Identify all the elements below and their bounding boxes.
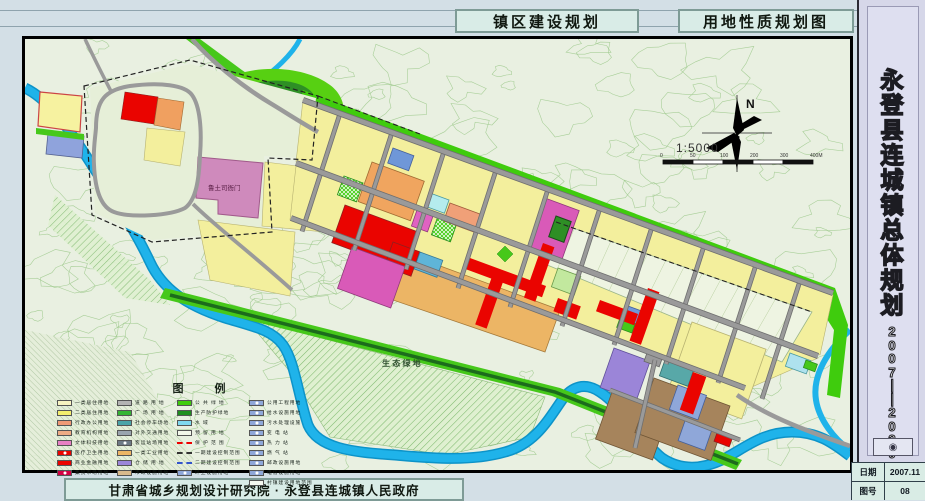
legend-label: 集贸市场用地 <box>75 469 109 476</box>
info-value: 2007.11 <box>884 463 925 481</box>
legend-column: 一类居住用地二类居住用地行政办公用地教育机构用地文体科技用地医疗卫生用地商业金融… <box>57 399 111 486</box>
legend-swatch <box>57 420 72 426</box>
legend-swatch <box>177 470 192 476</box>
legend-label: 变 电 站 <box>267 429 289 436</box>
legend-item: 水 域 <box>177 419 243 426</box>
legend-item: 保 护 范 围 <box>177 439 243 446</box>
legend-item: 社会停车场地 <box>117 419 171 426</box>
scale-text: 1:5000 <box>676 141 719 155</box>
legend-swatch <box>177 400 192 406</box>
legend-swatch <box>249 450 264 456</box>
legend-label: 保 护 范 围 <box>195 439 225 446</box>
legend-label: 仓 储 用 地 <box>135 459 165 466</box>
drawing-title-vertical: 永登县连城镇总体规划 <box>859 68 925 318</box>
legend-item: 公 共 绿 地 <box>177 399 243 406</box>
legend-item: 变 电 站 <box>249 429 315 436</box>
legend-label: 燃 气 站 <box>267 449 289 456</box>
legend-item: 给水设施用地 <box>249 409 315 416</box>
plan-sheet: { "header": { "title_left": "镇区建设规划", "t… <box>0 0 925 500</box>
legend-swatch <box>57 440 72 446</box>
legend-swatch <box>117 450 132 456</box>
legend-item: 一期建设控制范围 <box>177 449 243 456</box>
old-town-yellow-1 <box>38 92 82 132</box>
map-frame: N 1:5000 050100200300400M 鲁土司衙门 生 态 绿 地 … <box>22 36 853 473</box>
title-sidebar: 永登县连城镇总体规划 2007——2020 ◉ 日期2007.11图号08 <box>857 0 925 500</box>
legend-item: 文体科技用地 <box>57 439 111 446</box>
legend-label: 给水设施用地 <box>267 409 301 416</box>
legend-swatch <box>57 400 72 406</box>
legend-item: 道 路 用 地 <box>117 399 171 406</box>
legend-item: 生产防护绿地 <box>177 409 243 416</box>
title-right-box: 用地性质规划图 <box>678 9 854 33</box>
legend-item: 燃 气 站 <box>249 449 315 456</box>
legend-swatch <box>57 450 72 456</box>
legend-item: 邮政设施用地 <box>249 459 315 466</box>
info-row: 图号08 <box>851 481 925 500</box>
title-right-text: 用地性质规划图 <box>703 11 829 32</box>
legend-label: 热 力 站 <box>267 439 289 446</box>
legend-swatch <box>177 410 192 416</box>
legend-item: 广 场 用 地 <box>117 409 171 416</box>
legend-label: 电信设施用地 <box>267 469 301 476</box>
legend-item: 村镇建设用地范围 <box>249 479 315 486</box>
legend-swatch <box>249 400 264 406</box>
legend-item: 对外交通用地 <box>117 429 171 436</box>
legend-swatch <box>177 462 192 464</box>
old-town-yellow-2 <box>144 128 185 166</box>
legend-item: 一类工业用地 <box>117 449 171 456</box>
legend-label: 水 域 <box>195 419 209 426</box>
info-label: 日期 <box>851 463 884 481</box>
north-label: N <box>746 97 755 111</box>
legend-label: 邮政设施用地 <box>267 459 301 466</box>
legend-label: 生产防护绿地 <box>195 409 229 416</box>
legend-label: 对外交通用地 <box>135 429 169 436</box>
legend-label: 文体科技用地 <box>75 439 109 446</box>
legend-item: 仓 储 用 地 <box>117 459 171 466</box>
svg-text:50: 50 <box>690 153 696 159</box>
legend-swatch <box>117 410 132 416</box>
legend-label: 道 路 用 地 <box>135 399 165 406</box>
legend-swatch <box>249 410 264 416</box>
legend-swatch <box>249 460 264 466</box>
info-value: 08 <box>884 482 925 500</box>
legend-swatch <box>177 430 192 436</box>
legend-item: 医疗卫生用地 <box>57 449 111 456</box>
legend-label: 社会停车场地 <box>135 419 169 426</box>
old-town-orange <box>154 98 184 130</box>
legend-column: 公用工程用地给水设施用地污水处理设施变 电 站热 力 站燃 气 站邮政设施用地电… <box>249 399 315 486</box>
legend-swatch <box>249 470 264 476</box>
legend-swatch <box>249 440 264 446</box>
legend-item: 集贸市场用地 <box>57 469 111 476</box>
legend-item: 市政设施用地 <box>117 469 171 476</box>
legend-item: 二类居住用地 <box>57 409 111 416</box>
legend-label: 一类工业用地 <box>135 449 169 456</box>
info-row: 日期2007.11 <box>851 462 925 481</box>
legend-label: 二类居住用地 <box>75 409 109 416</box>
legend-swatch <box>57 470 72 476</box>
old-town-red <box>121 92 158 124</box>
legend-item: 二期建设控制范围 <box>177 459 243 466</box>
legend-swatch <box>177 452 192 454</box>
legend-swatch <box>117 420 132 426</box>
legend-item: 环卫设施用地 <box>177 469 243 476</box>
legend-swatch <box>57 410 72 416</box>
title-left-text: 镇区建设规划 <box>493 11 601 32</box>
legend-item: 电信设施用地 <box>249 469 315 476</box>
svg-text:0: 0 <box>660 153 663 159</box>
map-legend: 图 例 一类居住用地二类居住用地行政办公用地教育机构用地文体科技用地医疗卫生用地… <box>57 380 325 486</box>
legend-label: 环卫设施用地 <box>195 469 229 476</box>
legend-label: 商业金融用地 <box>75 459 109 466</box>
legend-item: 一类居住用地 <box>57 399 111 406</box>
info-table: 日期2007.11图号08 <box>851 462 925 500</box>
legend-label: 污水处理设施 <box>267 419 301 426</box>
svg-text:100: 100 <box>720 153 729 159</box>
legend-swatch <box>57 430 72 436</box>
legend-swatch <box>249 420 264 426</box>
legend-swatch <box>249 480 264 486</box>
legend-label: 广 场 用 地 <box>135 409 165 416</box>
historic-site-label: 鲁土司衙门 <box>208 183 241 192</box>
legend-swatch <box>177 420 192 426</box>
legend-swatch <box>117 430 132 436</box>
legend-label: 公用工程用地 <box>267 399 301 406</box>
legend-swatch <box>57 460 72 466</box>
legend-label: 医疗卫生用地 <box>75 449 109 456</box>
legend-swatch <box>117 470 132 476</box>
legend-swatch <box>117 400 132 406</box>
legend-label: 预 留 用 地 <box>195 429 225 436</box>
legend-column: 道 路 用 地广 场 用 地社会停车场地对外交通用地客运站场用地一类工业用地仓 … <box>117 399 171 486</box>
legend-item: 客运站场用地 <box>117 439 171 446</box>
legend-swatch <box>117 440 132 446</box>
title-left-box: 镇区建设规划 <box>455 9 639 33</box>
svg-text:300: 300 <box>780 153 789 159</box>
legend-item: 教育机构用地 <box>57 429 111 436</box>
legend-title: 图 例 <box>87 380 325 396</box>
info-label: 图号 <box>851 482 884 500</box>
legend-label: 一期建设控制范围 <box>195 449 241 456</box>
eco-green-label: 生 态 绿 地 <box>382 358 421 368</box>
legend-item: 热 力 站 <box>249 439 315 446</box>
legend-label: 行政办公用地 <box>75 419 109 426</box>
svg-text:200: 200 <box>750 153 759 159</box>
legend-swatch <box>177 442 192 444</box>
legend-label: 村镇建设用地范围 <box>267 479 313 486</box>
svg-text:400M: 400M <box>810 153 823 159</box>
legend-column: 公 共 绿 地生产防护绿地水 域预 留 用 地保 护 范 围一期建设控制范围二期… <box>177 399 243 486</box>
legend-item: 商业金融用地 <box>57 459 111 466</box>
legend-label: 二期建设控制范围 <box>195 459 241 466</box>
legend-item: 公用工程用地 <box>249 399 315 406</box>
legend-item: 预 留 用 地 <box>177 429 243 436</box>
legend-label: 客运站场用地 <box>135 439 169 446</box>
legend-swatch <box>249 430 264 436</box>
legend-label: 公 共 绿 地 <box>195 399 225 406</box>
legend-label: 一类居住用地 <box>75 399 109 406</box>
legend-item: 污水处理设施 <box>249 419 315 426</box>
legend-label: 教育机构用地 <box>75 429 109 436</box>
legend-item: 行政办公用地 <box>57 419 111 426</box>
legend-label: 市政设施用地 <box>135 469 169 476</box>
stamp-icon: ◉ <box>873 438 913 456</box>
legend-swatch <box>117 460 132 466</box>
